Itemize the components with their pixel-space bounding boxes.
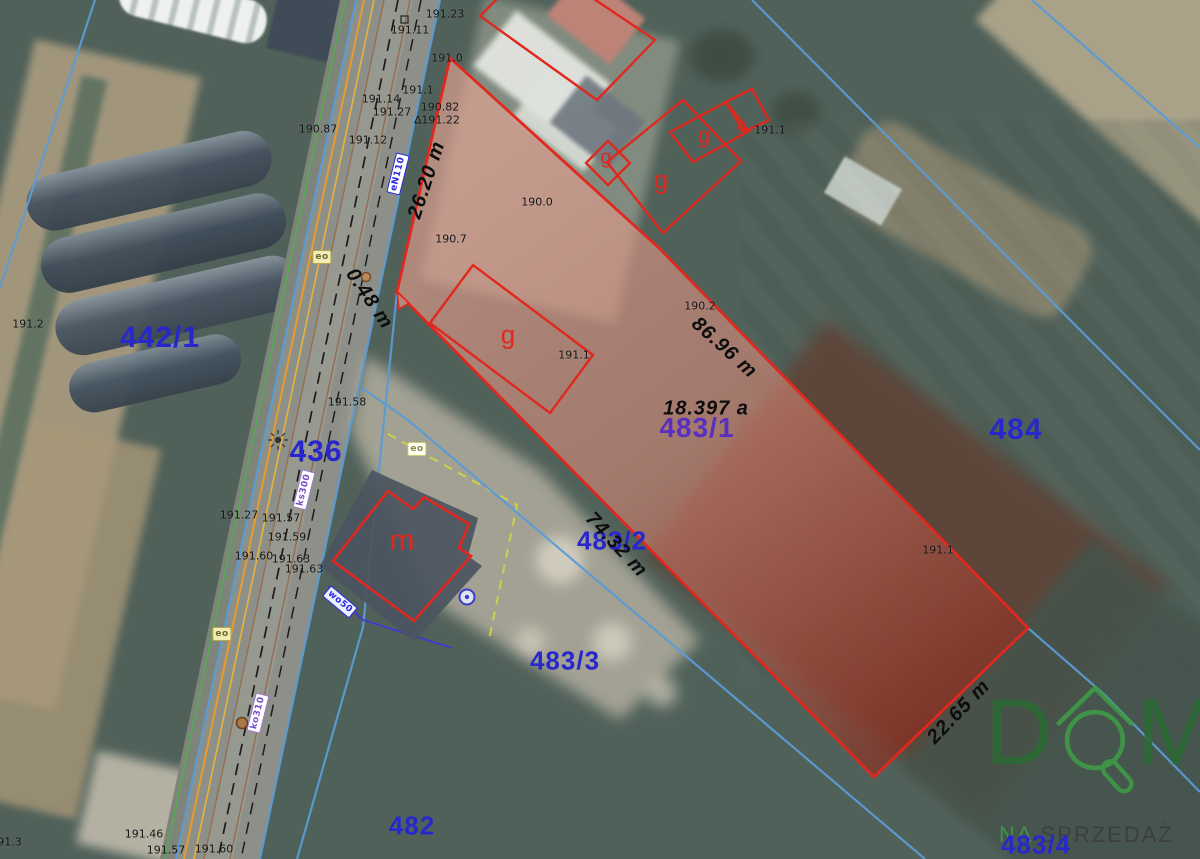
building-use-label: g bbox=[698, 123, 710, 149]
elevation-label: 191.60 bbox=[235, 550, 274, 563]
elevation-label: 191.2 bbox=[12, 318, 44, 331]
measurement-label: 86.96 m bbox=[686, 313, 761, 384]
elevation-label: 191.14 bbox=[362, 93, 401, 106]
parcel-number-label: 482 bbox=[389, 811, 435, 842]
elevation-label: 191.57 bbox=[147, 844, 186, 857]
utility-line-label: eo bbox=[407, 442, 426, 456]
map-canvas: 191.23191.11191.0191.1191.14191.27190.82… bbox=[0, 0, 1200, 859]
parcel-number-label: 436 bbox=[289, 435, 342, 469]
elevation-label: 190.0 bbox=[521, 196, 553, 209]
elevation-label: 191.3 bbox=[0, 836, 22, 849]
measurement-label: 26.20 m bbox=[404, 138, 451, 222]
elevation-label: 191.58 bbox=[328, 396, 367, 409]
elevation-label: ∆191.22 bbox=[414, 114, 460, 127]
elevation-label: 191.1 bbox=[402, 84, 434, 97]
elevation-label: 190.87 bbox=[299, 123, 338, 136]
parcel-number-label: 483/3 bbox=[530, 646, 600, 677]
elevation-label: 191.60 bbox=[195, 843, 234, 856]
building-use-label: m bbox=[390, 524, 415, 558]
elevation-label: 191.1 bbox=[754, 124, 786, 137]
utility-line-label: eo bbox=[312, 250, 331, 264]
elevation-label: 191.0 bbox=[431, 52, 463, 65]
measurement-label: 0.48 m bbox=[340, 264, 397, 333]
measurement-label: 22.65 m bbox=[923, 675, 995, 749]
parcel-number-label: 483/4 bbox=[1001, 830, 1071, 859]
measurement-label: 18.397 a bbox=[663, 398, 749, 421]
building-use-label: g bbox=[737, 116, 747, 137]
building-use-label: g bbox=[501, 320, 515, 351]
elevation-label: 191.27 bbox=[220, 509, 259, 522]
utility-line-label: ks300 bbox=[293, 470, 316, 511]
building-use-label: g bbox=[654, 165, 668, 196]
elevation-label: 191.1 bbox=[558, 349, 590, 362]
utility-line-label: eo bbox=[212, 627, 231, 641]
elevation-label: 191.1 bbox=[922, 544, 954, 557]
parcel-number-label: 442/1 bbox=[120, 321, 200, 355]
parcel-number-label: 484 bbox=[989, 413, 1042, 447]
elevation-label: 191.23 bbox=[426, 8, 465, 21]
utility-line-label: wo50 bbox=[322, 585, 358, 618]
elevation-label: 191.59 bbox=[268, 531, 307, 544]
elevation-label: 191.27 bbox=[373, 106, 412, 119]
building-use-label: g bbox=[600, 147, 611, 170]
elevation-label: 190.82 bbox=[421, 101, 460, 114]
utility-line-label: eN110 bbox=[386, 152, 409, 195]
elevation-label: 191.11 bbox=[391, 24, 430, 37]
elevation-label: 191.57 bbox=[262, 512, 301, 525]
elevation-label: 191.12 bbox=[349, 134, 388, 147]
elevation-label: 190.7 bbox=[435, 233, 467, 246]
elevation-label: 190.2 bbox=[684, 300, 716, 313]
label-layer: 191.23191.11191.0191.1191.14191.27190.82… bbox=[0, 0, 1200, 859]
elevation-label: 191.46 bbox=[125, 828, 164, 841]
utility-line-label: ko310 bbox=[246, 692, 269, 733]
elevation-label: 191.63 bbox=[285, 563, 324, 576]
